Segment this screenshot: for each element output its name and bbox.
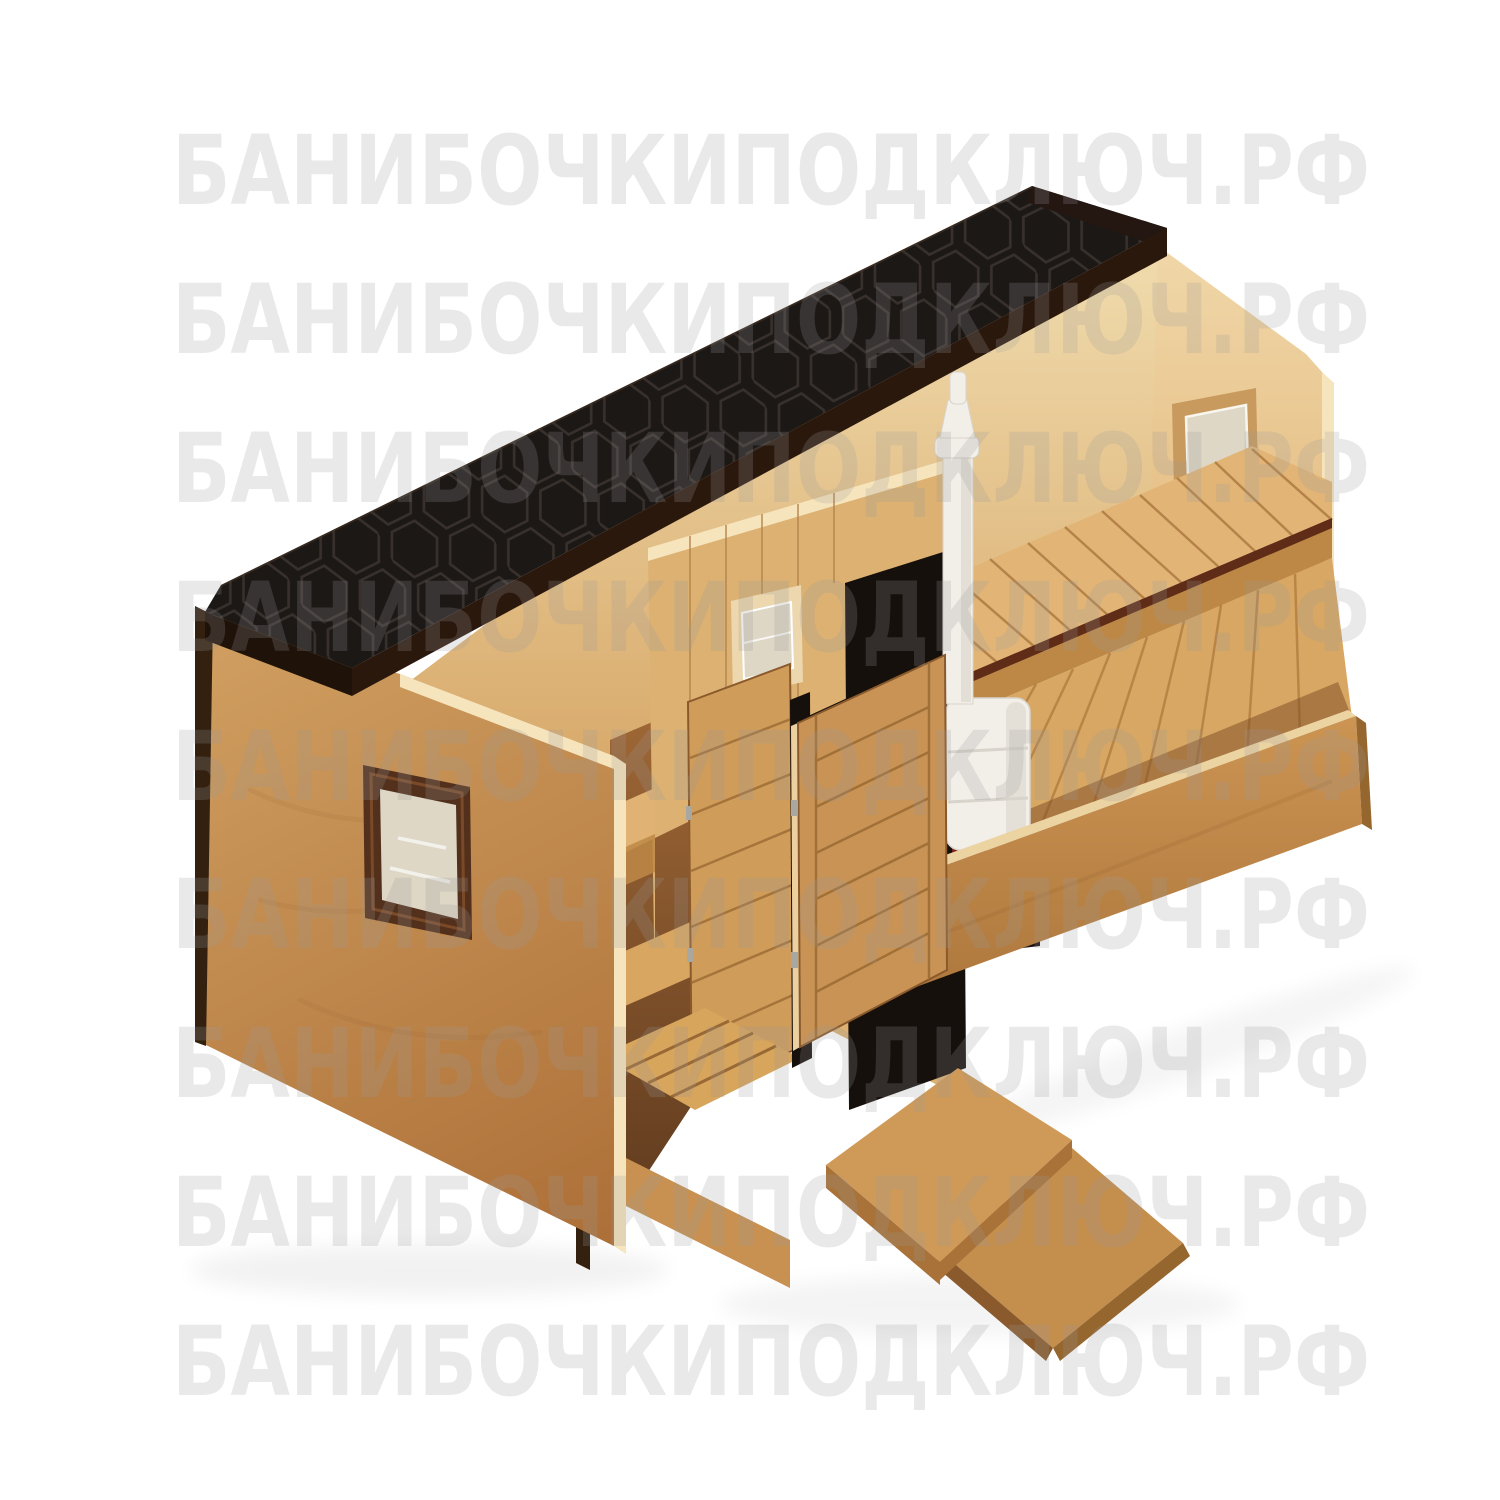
sauna-cutaway-render: БАНИБОЧКИПОДКЛЮЧ.РФ БАНИБОЧКИПОДКЛЮЧ.РФ … xyxy=(0,0,1500,1500)
watermark-text: БАНИБОЧКИПОДКЛЮЧ.РФ xyxy=(172,413,1370,525)
watermark-text: БАНИБОЧКИПОДКЛЮЧ.РФ xyxy=(172,711,1370,823)
chimney-cap-tip xyxy=(950,372,966,404)
watermark-text: БАНИБОЧКИПОДКЛЮЧ.РФ xyxy=(172,1157,1370,1269)
watermark-text: БАНИБОЧКИПОДКЛЮЧ.РФ xyxy=(172,1008,1370,1120)
render-canvas: БАНИБОЧКИПОДКЛЮЧ.РФ БАНИБОЧКИПОДКЛЮЧ.РФ … xyxy=(0,0,1500,1500)
watermark-text: БАНИБОЧКИПОДКЛЮЧ.РФ xyxy=(172,859,1370,971)
watermark-text: БАНИБОЧКИПОДКЛЮЧ.РФ xyxy=(172,264,1370,376)
watermark-text: БАНИБОЧКИПОДКЛЮЧ.РФ xyxy=(172,562,1370,674)
watermark-text: БАНИБОЧКИПОДКЛЮЧ.РФ xyxy=(172,115,1370,227)
watermark-overlay: БАНИБОЧКИПОДКЛЮЧ.РФ БАНИБОЧКИПОДКЛЮЧ.РФ … xyxy=(172,115,1370,1418)
watermark-text: БАНИБОЧКИПОДКЛЮЧ.РФ xyxy=(172,1306,1370,1418)
